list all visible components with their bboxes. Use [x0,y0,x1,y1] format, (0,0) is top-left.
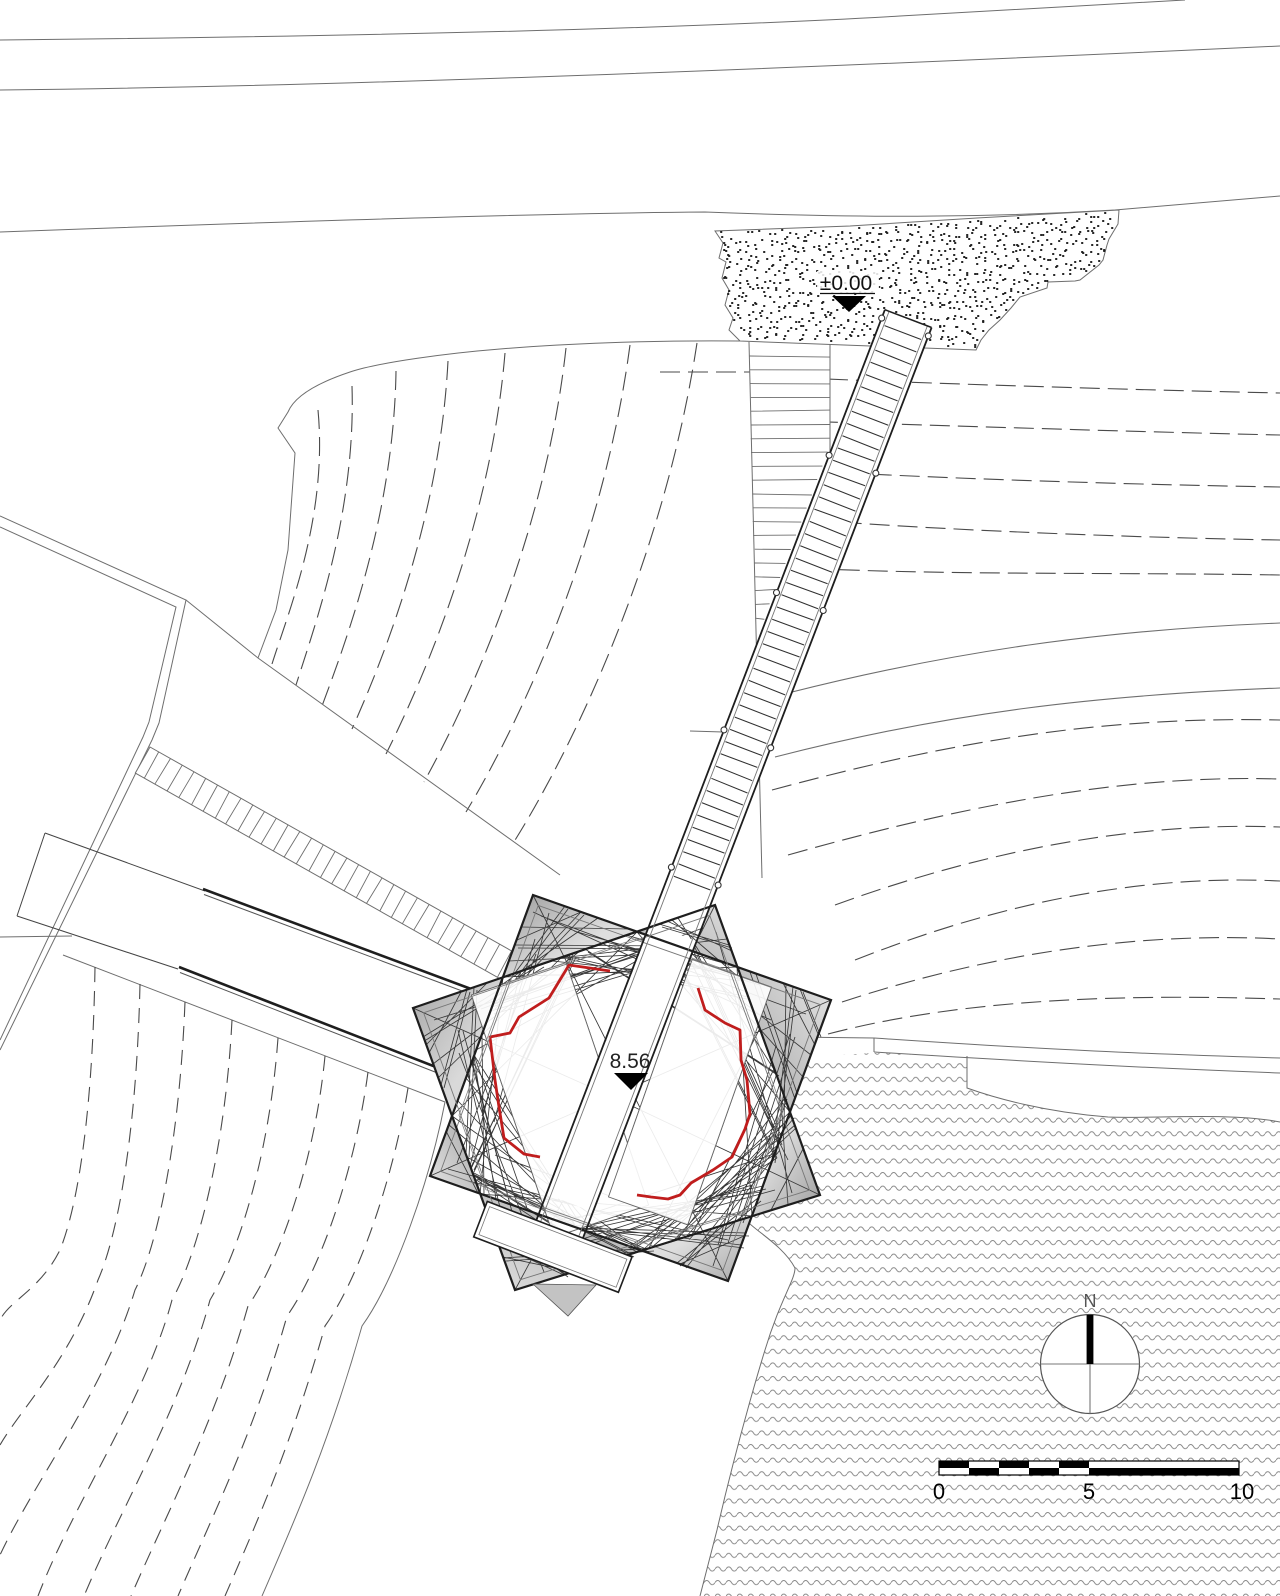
svg-text:0: 0 [933,1479,945,1504]
svg-text:10: 10 [1230,1479,1254,1504]
svg-text:5: 5 [1083,1479,1095,1504]
svg-text:±0.00: ±0.00 [820,272,872,295]
svg-text:N: N [1084,1291,1097,1311]
svg-text:8.56: 8.56 [610,1050,651,1073]
